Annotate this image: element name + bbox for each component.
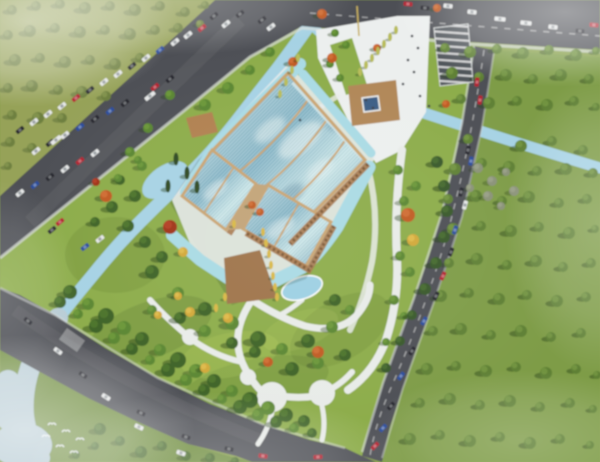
tree-highlight — [5, 163, 9, 167]
tree-highlight — [8, 111, 14, 117]
poplar-tree — [394, 26, 398, 34]
haze-veil — [0, 30, 600, 450]
haze-layer — [0, 0, 600, 462]
aerial-rendering-canvas — [0, 0, 600, 462]
tree-highlight — [6, 138, 12, 144]
scene-svg — [0, 0, 600, 462]
